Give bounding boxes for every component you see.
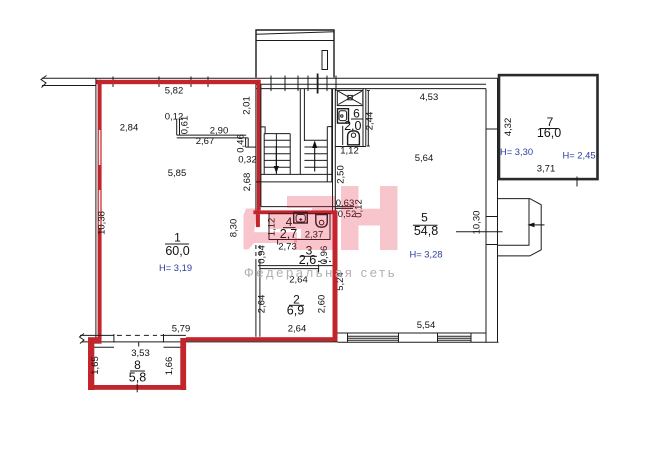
svg-text:1,65: 1,65: [90, 356, 101, 375]
svg-text:H= 3,30: H= 3,30: [500, 146, 533, 157]
svg-text:1: 1: [174, 231, 181, 245]
svg-text:8,30: 8,30: [229, 219, 240, 238]
svg-text:2,73: 2,73: [278, 242, 297, 253]
svg-text:H= 3,19: H= 3,19: [159, 262, 192, 273]
svg-text:6,9: 6,9: [287, 304, 304, 318]
svg-text:2,67: 2,67: [196, 136, 215, 147]
svg-text:5,79: 5,79: [172, 323, 191, 334]
svg-text:2,44: 2,44: [365, 112, 376, 131]
svg-text:5,64: 5,64: [415, 153, 434, 164]
svg-text:2,64: 2,64: [257, 295, 268, 314]
svg-text:60,0: 60,0: [165, 244, 189, 258]
svg-text:5,54: 5,54: [417, 320, 436, 331]
svg-text:5,85: 5,85: [168, 168, 187, 179]
svg-text:H= 2,45: H= 2,45: [562, 149, 595, 160]
svg-text:1,66: 1,66: [164, 357, 175, 376]
svg-text:5,82: 5,82: [165, 86, 184, 97]
svg-text:0,61: 0,61: [180, 116, 191, 135]
svg-text:54,8: 54,8: [414, 224, 438, 238]
svg-text:10,38: 10,38: [97, 211, 108, 235]
svg-text:2,60: 2,60: [317, 295, 328, 314]
svg-text:2,68: 2,68: [242, 173, 253, 192]
svg-text:0,46: 0,46: [236, 134, 247, 153]
svg-text:5: 5: [421, 211, 428, 225]
svg-text:10,30: 10,30: [472, 211, 483, 235]
svg-text:0,94: 0,94: [257, 245, 268, 264]
svg-text:2,50: 2,50: [336, 165, 347, 184]
svg-text:Федеральная сеть: Федеральная сеть: [244, 265, 397, 280]
svg-text:2,01: 2,01: [242, 96, 253, 115]
svg-text:5,8: 5,8: [129, 371, 146, 385]
svg-text:2,90: 2,90: [210, 125, 229, 136]
svg-text:0,32: 0,32: [238, 154, 257, 165]
svg-text:16,0: 16,0: [537, 126, 561, 140]
svg-text:2,64: 2,64: [288, 323, 307, 334]
svg-text:H= 3,28: H= 3,28: [409, 248, 442, 259]
svg-text:3,71: 3,71: [537, 163, 556, 174]
svg-text:4,53: 4,53: [420, 92, 439, 103]
svg-text:2,84: 2,84: [120, 122, 139, 133]
svg-text:4,32: 4,32: [503, 118, 514, 137]
svg-text:1,12: 1,12: [340, 146, 359, 157]
